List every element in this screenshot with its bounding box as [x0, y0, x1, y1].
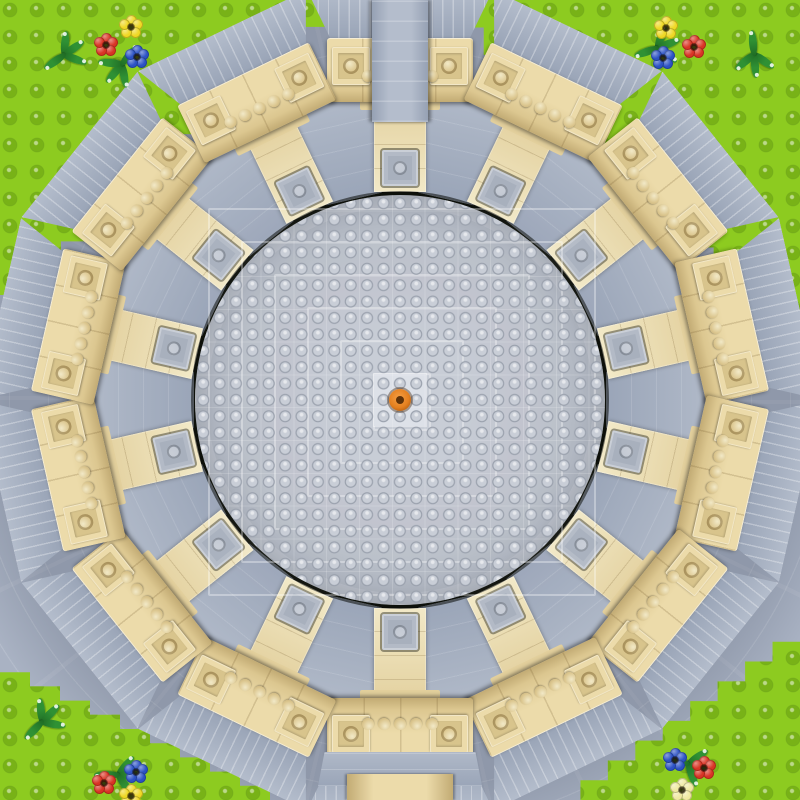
- wall-round-stud: [709, 321, 723, 335]
- wall-stud-plate-inner: [151, 628, 188, 665]
- wall-stud-row: [504, 670, 578, 714]
- wall-stud-row: [223, 670, 297, 714]
- wall-round-stud: [237, 677, 253, 693]
- wall-stud-row: [223, 86, 297, 130]
- wall-stud: [705, 513, 724, 532]
- column-end-tile-stud: [491, 182, 510, 201]
- wall-round-stud: [128, 202, 145, 219]
- flower-center: [659, 54, 667, 62]
- wall-round-stud: [533, 684, 549, 700]
- wall-round-stud: [533, 100, 549, 116]
- wall-round-stud: [251, 684, 267, 700]
- column-end-tile-stud: [618, 340, 635, 357]
- wall-stud: [578, 110, 599, 131]
- column-end-tile-inner: [283, 175, 315, 207]
- flower-center: [678, 786, 686, 794]
- wall-stud-plate-inner: [436, 53, 462, 79]
- wall-stud: [441, 58, 457, 74]
- wall-stud: [441, 726, 457, 742]
- wall-stud: [619, 635, 641, 657]
- wall-stud: [97, 559, 119, 581]
- wall-round-stud: [148, 606, 165, 623]
- wall-stud-plate-inner: [338, 721, 364, 747]
- wall-round-stud: [251, 100, 267, 116]
- wall-round-stud: [518, 691, 534, 707]
- walkway-bottom: [347, 774, 453, 800]
- wall-stud-row: [702, 290, 731, 367]
- wall-round-stud: [712, 336, 726, 350]
- column-end-tile: [382, 150, 418, 186]
- wall-stud: [76, 268, 95, 287]
- wall-round-stud: [70, 434, 84, 448]
- center-orange-stud-core: [396, 396, 404, 404]
- wall-stud: [619, 142, 641, 164]
- wall-stud-plate: [692, 255, 738, 301]
- wall-round-stud: [518, 93, 534, 109]
- wall-stud-row: [70, 434, 99, 511]
- wall-stud: [289, 712, 310, 733]
- wall-stud-plate-inner: [673, 552, 710, 589]
- wall-round-stud: [410, 718, 422, 730]
- wall-stud-plate-inner: [70, 262, 101, 293]
- column-end-tile-inner: [388, 156, 412, 180]
- wall-round-stud: [73, 449, 87, 463]
- wall-round-stud: [237, 107, 253, 123]
- wall-stud-plate-inner: [90, 552, 127, 589]
- wall-round-stud: [394, 718, 406, 730]
- column-end-tile-inner: [612, 334, 641, 363]
- wall-stud: [343, 726, 359, 742]
- wall-round-stud: [128, 581, 145, 598]
- wall-stud-plate-inner: [699, 262, 730, 293]
- walkway-top: [372, 0, 428, 122]
- flower: [682, 35, 706, 59]
- flower-center: [671, 756, 679, 764]
- flower-center: [133, 53, 141, 61]
- wall-stud-plate-inner: [612, 628, 649, 665]
- wall-round-stud: [645, 594, 662, 611]
- column-end-tile-stud: [290, 182, 309, 201]
- flower-center: [662, 24, 670, 32]
- wall-stud-plate-inner: [151, 135, 188, 172]
- wall-stud-plate-inner: [90, 212, 127, 249]
- wall-round-stud: [705, 481, 719, 495]
- wall-stud-row: [70, 290, 99, 367]
- wall-round-stud: [712, 449, 726, 463]
- wall-round-stud: [547, 677, 563, 693]
- flower-center: [132, 768, 140, 776]
- wall-stud: [54, 364, 73, 383]
- wall-round-stud: [645, 190, 662, 207]
- column-end-tile-inner: [159, 437, 188, 466]
- wall-stud: [680, 559, 702, 581]
- wall-stud-plate-inner: [673, 212, 710, 249]
- wall-stud: [727, 417, 746, 436]
- brick-model-scene: [0, 0, 800, 800]
- flower: [119, 784, 143, 800]
- wall-stud: [76, 513, 95, 532]
- column-end-tile-stud: [165, 443, 182, 460]
- flower: [654, 16, 678, 40]
- wall-round-stud: [138, 190, 155, 207]
- flower: [119, 15, 143, 39]
- column-end-tile: [382, 614, 418, 650]
- wall-stud-row: [504, 86, 578, 130]
- wall-stud: [705, 268, 724, 287]
- column-end-tile-inner: [485, 593, 517, 625]
- wall-stud-plate-inner: [338, 53, 364, 79]
- wall-round-stud: [77, 321, 91, 335]
- column-end-tile-stud: [491, 600, 510, 619]
- wall-round-stud: [84, 290, 98, 304]
- wall-stud: [97, 219, 119, 241]
- wall-stud-row: [702, 434, 731, 511]
- wall-stud-plate-inner: [70, 507, 101, 538]
- column-end-tile-inner: [388, 620, 412, 644]
- wall-round-stud: [73, 336, 87, 350]
- flower: [92, 771, 116, 795]
- wall-round-stud: [362, 718, 374, 730]
- flower: [94, 33, 118, 57]
- flower-center: [700, 764, 708, 772]
- wall-stud-plate: [692, 499, 738, 545]
- wall-stud: [490, 712, 511, 733]
- wall-round-stud: [80, 305, 94, 319]
- wall-stud: [54, 417, 73, 436]
- wall-round-stud: [655, 581, 672, 598]
- wall-round-stud: [77, 465, 91, 479]
- column-end-tile-stud: [290, 600, 309, 619]
- center-orange-stud: [389, 389, 411, 411]
- column-end-tile-stud: [618, 443, 635, 460]
- flower: [651, 46, 675, 70]
- flower: [663, 748, 687, 772]
- dome: [195, 195, 605, 605]
- column-end-tile-stud: [393, 161, 407, 175]
- column-end-tile-inner: [612, 437, 641, 466]
- wall-round-stud: [716, 434, 730, 448]
- wall-stud: [158, 635, 180, 657]
- wall-round-stud: [635, 177, 652, 194]
- wall-round-stud: [655, 202, 672, 219]
- wall-stud-plate-inner: [572, 103, 607, 138]
- column-end-tile-stud: [165, 340, 182, 357]
- wall-stud: [289, 67, 310, 88]
- wall-round-stud: [378, 718, 390, 730]
- wall-stud: [200, 669, 221, 690]
- wall-stud: [343, 58, 359, 74]
- wall-stud: [158, 142, 180, 164]
- wall-round-stud: [426, 718, 438, 730]
- wall-round-stud: [705, 305, 719, 319]
- wall-stud-plate-inner: [699, 507, 730, 538]
- flower: [124, 760, 148, 784]
- wall-round-stud: [266, 93, 282, 109]
- wall-stud-row: [362, 718, 438, 730]
- wall-stud: [200, 110, 221, 131]
- flower: [125, 45, 149, 69]
- wall-round-stud: [80, 481, 94, 495]
- wall-stud: [727, 364, 746, 383]
- column-end-tile-inner: [283, 593, 315, 625]
- flower-center: [690, 43, 698, 51]
- wall-stud: [680, 219, 702, 241]
- wall-stud: [578, 669, 599, 690]
- wall-round-stud: [547, 107, 563, 123]
- column-end-tile-inner: [159, 334, 188, 363]
- flower-center: [100, 779, 108, 787]
- wall-stud-plate-inner: [436, 721, 462, 747]
- flower-center: [127, 23, 135, 31]
- wall-round-stud: [709, 465, 723, 479]
- column-end-tile-inner: [485, 175, 517, 207]
- flower-center: [127, 792, 135, 800]
- wall-round-stud: [138, 594, 155, 611]
- column-end-tile-stud: [393, 625, 407, 639]
- flower-center: [102, 41, 110, 49]
- wall-round-stud: [266, 691, 282, 707]
- wall-round-stud: [702, 290, 716, 304]
- wall-round-stud: [635, 606, 652, 623]
- wall-round-stud: [148, 177, 165, 194]
- flower: [692, 756, 716, 780]
- flower: [670, 778, 694, 800]
